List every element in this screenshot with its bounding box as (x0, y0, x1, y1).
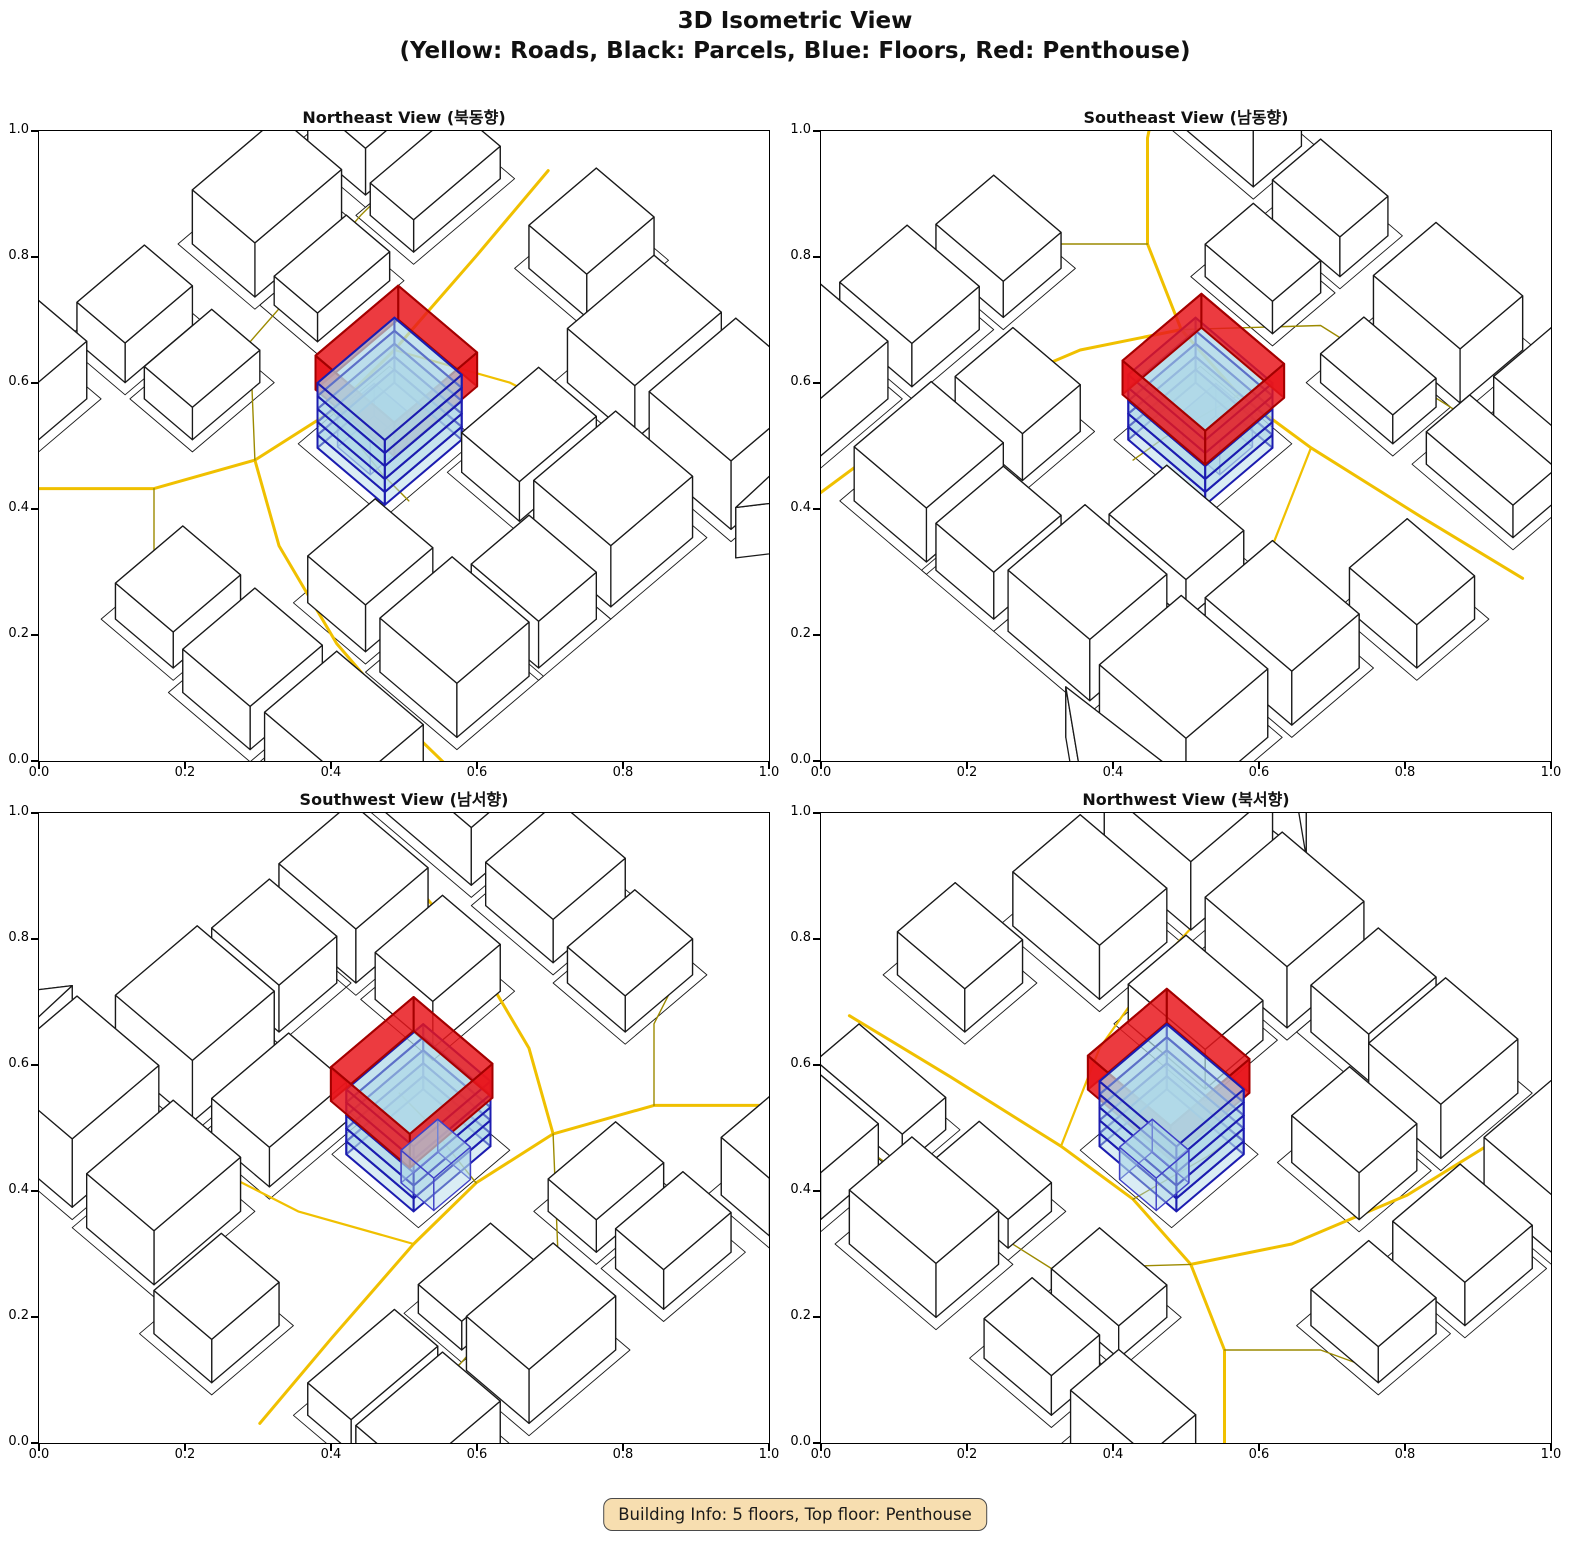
y-tick-label: 0.4 (773, 500, 811, 515)
y-tickmark (813, 256, 821, 258)
x-tick-label: 0.4 (311, 765, 351, 780)
y-tickmark (31, 130, 39, 132)
buildings-layer (821, 131, 1551, 761)
x-tick-label: 1.0 (1531, 765, 1571, 780)
x-tick-label: 0.2 (165, 1447, 205, 1462)
x-tick-label: 0.4 (1093, 1447, 1133, 1462)
panel-title-southeast: Southeast View (남동향) (821, 104, 1551, 128)
y-tick-label: 1.0 (773, 804, 811, 819)
x-tick-label: 0.8 (1385, 765, 1425, 780)
x-tick-label: 0.0 (19, 765, 59, 780)
x-tick-label: 1.0 (749, 765, 789, 780)
y-tick-label: 0.6 (0, 374, 29, 389)
x-tick-label: 0.8 (1385, 1447, 1425, 1462)
x-tick-label: 0.6 (457, 765, 497, 780)
scene-northeast-svg (39, 131, 769, 761)
x-tick-label: 0.2 (165, 765, 205, 780)
scene-southwest-svg (39, 813, 769, 1443)
y-tickmark (813, 382, 821, 384)
y-tickmark (31, 634, 39, 636)
y-tick-label: 0.6 (773, 1056, 811, 1071)
y-tick-label: 0.8 (773, 248, 811, 263)
buildings-layer (39, 813, 769, 1443)
y-tickmark (813, 634, 821, 636)
x-tick-label: 0.6 (1239, 1447, 1279, 1462)
y-tick-label: 0.6 (773, 374, 811, 389)
x-tick-label: 0.6 (457, 1447, 497, 1462)
panel-southeast: Southeast View (남동향) 0.00.00.20.20.40.40… (820, 130, 1552, 762)
y-tick-label: 0.8 (0, 930, 29, 945)
y-tick-label: 0.8 (773, 930, 811, 945)
figure-subtitle: (Yellow: Roads, Black: Parcels, Blue: Fl… (0, 36, 1590, 66)
scene-northwest-svg (821, 813, 1551, 1443)
x-tick-label: 0.8 (603, 765, 643, 780)
y-tickmark (31, 1316, 39, 1318)
y-tickmark (813, 938, 821, 940)
figure-title: 3D Isometric View (0, 6, 1590, 36)
x-tick-label: 0.0 (19, 1447, 59, 1462)
y-tick-label: 0.4 (0, 1182, 29, 1197)
y-tick-label: 1.0 (0, 804, 29, 819)
y-tick-label: 0.2 (0, 1308, 29, 1323)
x-tick-label: 0.2 (947, 1447, 987, 1462)
y-tickmark (813, 508, 821, 510)
y-tick-label: 1.0 (773, 122, 811, 137)
x-tick-label: 1.0 (1531, 1447, 1571, 1462)
y-tickmark (31, 1190, 39, 1192)
y-tick-label: 0.2 (773, 1308, 811, 1323)
buildings-layer (821, 813, 1551, 1443)
panel-title-northwest: Northwest View (북서향) (821, 786, 1551, 810)
x-tick-label: 0.4 (311, 1447, 351, 1462)
y-tickmark (31, 256, 39, 258)
x-tick-label: 0.0 (801, 765, 841, 780)
y-tick-label: 0.6 (0, 1056, 29, 1071)
y-tick-label: 1.0 (0, 122, 29, 137)
x-tick-label: 0.6 (1239, 765, 1279, 780)
y-tickmark (31, 382, 39, 384)
y-tickmark (813, 130, 821, 132)
x-tick-label: 0.2 (947, 765, 987, 780)
scene-southeast-svg (821, 131, 1551, 761)
y-tickmark (31, 938, 39, 940)
y-tickmark (813, 812, 821, 814)
y-tick-label: 0.4 (0, 500, 29, 515)
y-tickmark (31, 1064, 39, 1066)
panel-title-southwest: Southwest View (남서향) (39, 786, 769, 810)
y-tick-label: 0.4 (773, 1182, 811, 1197)
y-tick-label: 0.8 (0, 248, 29, 263)
panel-title-northeast: Northeast View (북동향) (39, 104, 769, 128)
x-tick-label: 0.8 (603, 1447, 643, 1462)
figure: { "figure": { "title_line1": "3D Isometr… (0, 0, 1590, 1560)
y-tick-label: 0.2 (773, 626, 811, 641)
x-tick-label: 0.0 (801, 1447, 841, 1462)
panel-northwest: Northwest View (북서향) 0.00.00.20.20.40.40… (820, 812, 1552, 1444)
y-tickmark (31, 508, 39, 510)
y-tickmark (813, 1190, 821, 1192)
x-tick-label: 1.0 (749, 1447, 789, 1462)
y-tickmark (813, 1064, 821, 1066)
panel-northeast: Northeast View (북동향) 0.00.00.20.20.40.40… (38, 130, 770, 762)
y-tick-label: 0.2 (0, 626, 29, 641)
buildings-layer (39, 131, 769, 761)
panel-southwest: Southwest View (남서향) 0.00.00.20.20.40.40… (38, 812, 770, 1444)
x-tick-label: 0.4 (1093, 765, 1133, 780)
y-tickmark (31, 812, 39, 814)
y-tickmark (813, 1316, 821, 1318)
building-info-box: Building Info: 5 floors, Top floor: Pent… (603, 1498, 987, 1531)
